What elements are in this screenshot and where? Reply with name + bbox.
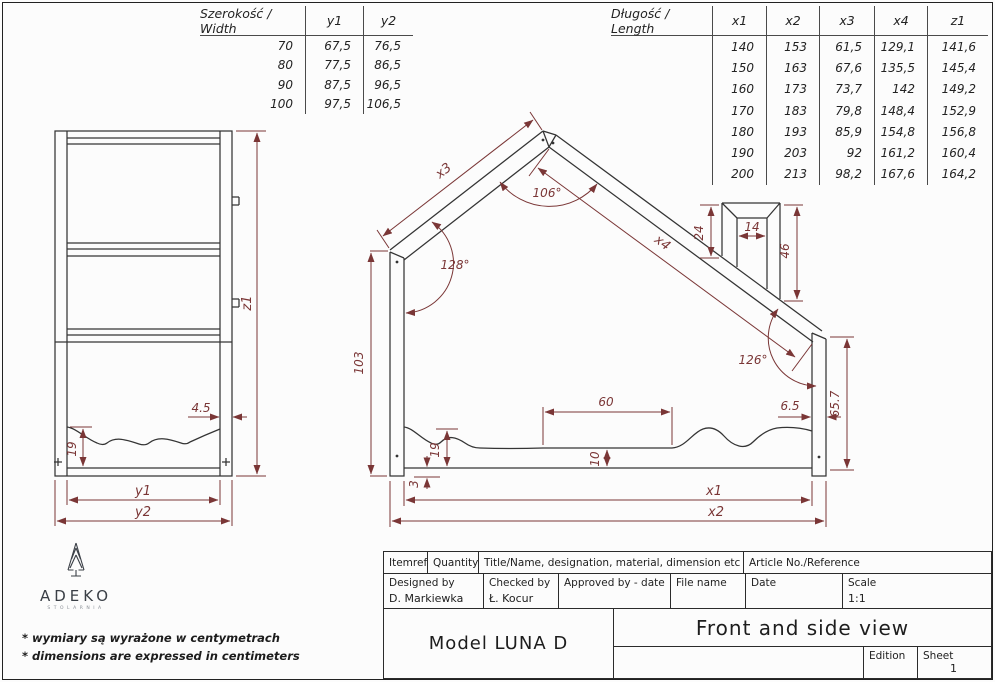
side-view-outline bbox=[54, 131, 239, 476]
width-table-header-y1: y1 bbox=[305, 6, 363, 36]
sheet-cell: Sheet 1 bbox=[918, 647, 991, 678]
dim-label-chimney-left: 24 bbox=[692, 225, 706, 240]
length-cell bbox=[611, 142, 712, 163]
length-table-header-x2: x2 bbox=[766, 6, 819, 36]
logo-brand-name: ADEKO bbox=[28, 587, 124, 605]
length-cell: 164,2 bbox=[927, 164, 988, 185]
dimension-notes: * wymiary są wyrażone w centymetrach * d… bbox=[22, 629, 300, 666]
checked-by-value: Ł. Kocur bbox=[484, 592, 558, 608]
dim-label-left-eave-angle: 128° bbox=[441, 258, 470, 272]
adeko-logo: ADEKO STOLARNIA bbox=[28, 541, 124, 611]
length-cell: 190 bbox=[712, 142, 766, 163]
edition-sheet-row: Edition Sheet 1 bbox=[614, 647, 991, 678]
length-cell bbox=[611, 121, 712, 142]
dim-label-left-post-height: 103 bbox=[352, 352, 366, 375]
title-block: Itemref Quantity Title/Name, designation… bbox=[383, 551, 992, 679]
length-cell: 79,8 bbox=[819, 100, 874, 121]
length-cell: 142 bbox=[874, 79, 927, 100]
title-name-cell: Title/Name, designation, material, dimen… bbox=[479, 552, 744, 573]
length-cell bbox=[611, 36, 712, 57]
article-reference-cell: Article No./Reference bbox=[744, 552, 991, 573]
dim-label-chimney-right: 46 bbox=[778, 243, 792, 259]
width-cell: 70 bbox=[200, 36, 305, 56]
width-cell: 100 bbox=[200, 95, 305, 115]
width-cell: 77,5 bbox=[305, 56, 363, 76]
length-cell: 92 bbox=[819, 142, 874, 163]
length-cell: 135,5 bbox=[874, 57, 927, 78]
length-cell: 163 bbox=[766, 57, 819, 78]
width-cell: 96,5 bbox=[363, 75, 413, 95]
dim-label-x4: x4 bbox=[650, 232, 673, 254]
dim-label-front-post-width: 6.5 bbox=[780, 399, 799, 413]
length-cell: 148,4 bbox=[874, 100, 927, 121]
logo-subtitle: STOLARNIA bbox=[28, 606, 124, 611]
view-title-area: Front and side view Edition Sheet 1 bbox=[614, 609, 991, 678]
sheet-value: 1 bbox=[918, 662, 991, 678]
length-cell: 153 bbox=[766, 36, 819, 57]
date-label: Date bbox=[746, 574, 842, 589]
title-block-row-headers: Itemref Quantity Title/Name, designation… bbox=[384, 552, 991, 574]
model-name: Model LUNA D bbox=[384, 609, 614, 678]
dimension-labels: z1 4.5 19 y1 y2 x3 x4 106° 128° 126° 103… bbox=[65, 160, 842, 520]
length-cell: 180 bbox=[712, 121, 766, 142]
designed-by-value: D. Markiewka bbox=[384, 592, 483, 608]
dim-label-foot-gap: 3 bbox=[407, 480, 421, 488]
dim-label-peak-angle: 106° bbox=[533, 186, 562, 200]
width-cell: 86,5 bbox=[363, 56, 413, 76]
dim-label-chimney-width: 14 bbox=[744, 220, 759, 234]
dim-label-side-post-width: 4.5 bbox=[191, 401, 210, 415]
length-cell: 149,2 bbox=[927, 79, 988, 100]
width-table-header-y2: y2 bbox=[363, 6, 413, 36]
length-cell: 73,7 bbox=[819, 79, 874, 100]
width-table: Szerokość / Width y1 y2 70 67,5 76,5 80 … bbox=[200, 6, 413, 114]
length-cell: 140 bbox=[712, 36, 766, 57]
width-table-header-label: Szerokość / Width bbox=[200, 6, 305, 36]
front-wave-edge bbox=[404, 427, 812, 449]
width-cell: 67,5 bbox=[305, 36, 363, 56]
length-table: Długość / Length x1 x2 x3 x4 z1 140 153 … bbox=[611, 6, 988, 185]
width-cell: 106,5 bbox=[363, 95, 413, 115]
dim-label-right-post-height: 65.7 bbox=[828, 390, 842, 417]
approved-by-cell: Approved by - date bbox=[559, 574, 671, 608]
dim-label-y2: y2 bbox=[134, 505, 151, 520]
length-cell: 141,6 bbox=[927, 36, 988, 57]
dim-label-z1: z1 bbox=[240, 295, 255, 311]
length-cell bbox=[611, 57, 712, 78]
length-cell: 152,9 bbox=[927, 100, 988, 121]
dim-label-x1: x1 bbox=[705, 484, 722, 499]
checked-by-cell: Checked by Ł. Kocur bbox=[484, 574, 559, 608]
dim-label-right-eave-angle: 126° bbox=[739, 353, 768, 367]
length-table-header-x4: x4 bbox=[874, 6, 927, 36]
length-table-header-x1: x1 bbox=[712, 6, 766, 36]
edition-sheet-spacer bbox=[614, 647, 864, 678]
checked-by-label: Checked by bbox=[484, 574, 558, 589]
length-cell: 129,1 bbox=[874, 36, 927, 57]
length-cell: 173 bbox=[766, 79, 819, 100]
length-cell: 98,2 bbox=[819, 164, 874, 185]
length-cell: 183 bbox=[766, 100, 819, 121]
length-cell: 154,8 bbox=[874, 121, 927, 142]
sheet-label: Sheet bbox=[918, 647, 991, 662]
side-wave-edge bbox=[67, 427, 220, 445]
designed-by-cell: Designed by D. Markiewka bbox=[384, 574, 484, 608]
dim-label-y1: y1 bbox=[134, 484, 151, 499]
left-post bbox=[390, 252, 404, 476]
length-cell: 145,4 bbox=[927, 57, 988, 78]
width-cell: 80 bbox=[200, 56, 305, 76]
length-cell: 67,6 bbox=[819, 57, 874, 78]
length-cell: 203 bbox=[766, 142, 819, 163]
dim-label-rail-height: 10 bbox=[588, 451, 602, 467]
length-cell: 167,6 bbox=[874, 164, 927, 185]
note-english: * dimensions are expressed in centimeter… bbox=[22, 647, 300, 665]
width-cell: 97,5 bbox=[305, 95, 363, 115]
length-cell bbox=[611, 79, 712, 100]
dim-label-front-wave: 19 bbox=[428, 442, 442, 457]
length-table-header-z1: z1 bbox=[927, 6, 988, 36]
chimney bbox=[722, 203, 780, 299]
date-cell: Date bbox=[746, 574, 843, 608]
edition-cell: Edition bbox=[864, 647, 918, 678]
length-cell: 160 bbox=[712, 79, 766, 100]
length-table-header-x3: x3 bbox=[819, 6, 874, 36]
dim-label-opening: 60 bbox=[598, 395, 614, 409]
quantity-cell: Quantity bbox=[428, 552, 479, 573]
width-cell: 90 bbox=[200, 75, 305, 95]
itemref-cell: Itemref bbox=[384, 552, 428, 573]
file-name-cell: File name bbox=[671, 574, 746, 608]
title-block-row-main: Model LUNA D Front and side view Edition… bbox=[384, 609, 991, 678]
tree-icon bbox=[63, 541, 89, 581]
edition-label: Edition bbox=[864, 647, 917, 662]
title-block-row-people: Designed by D. Markiewka Checked by Ł. K… bbox=[384, 574, 991, 609]
length-cell: 213 bbox=[766, 164, 819, 185]
length-table-header-label: Długość / Length bbox=[611, 6, 712, 36]
note-polish: * wymiary są wyrażone w centymetrach bbox=[22, 629, 300, 647]
scale-label: Scale bbox=[843, 574, 991, 589]
dim-label-side-wave: 19 bbox=[65, 441, 79, 456]
width-cell: 76,5 bbox=[363, 36, 413, 56]
scale-value: 1:1 bbox=[843, 592, 991, 608]
scale-cell: Scale 1:1 bbox=[843, 574, 991, 608]
approved-by-label: Approved by - date bbox=[559, 574, 670, 589]
designed-by-label: Designed by bbox=[384, 574, 483, 589]
file-name-label: File name bbox=[671, 574, 745, 589]
length-cell: 200 bbox=[712, 164, 766, 185]
right-post bbox=[812, 333, 826, 476]
length-cell: 61,5 bbox=[819, 36, 874, 57]
length-cell: 161,2 bbox=[874, 142, 927, 163]
length-cell: 85,9 bbox=[819, 121, 874, 142]
view-title: Front and side view bbox=[614, 609, 991, 647]
length-cell: 150 bbox=[712, 57, 766, 78]
dim-label-x2: x2 bbox=[707, 505, 724, 520]
length-cell: 170 bbox=[712, 100, 766, 121]
length-cell: 160,4 bbox=[927, 142, 988, 163]
length-cell bbox=[611, 164, 712, 185]
length-cell: 156,8 bbox=[927, 121, 988, 142]
length-cell bbox=[611, 100, 712, 121]
dim-label-x3: x3 bbox=[432, 160, 455, 182]
length-cell: 193 bbox=[766, 121, 819, 142]
width-cell: 87,5 bbox=[305, 75, 363, 95]
